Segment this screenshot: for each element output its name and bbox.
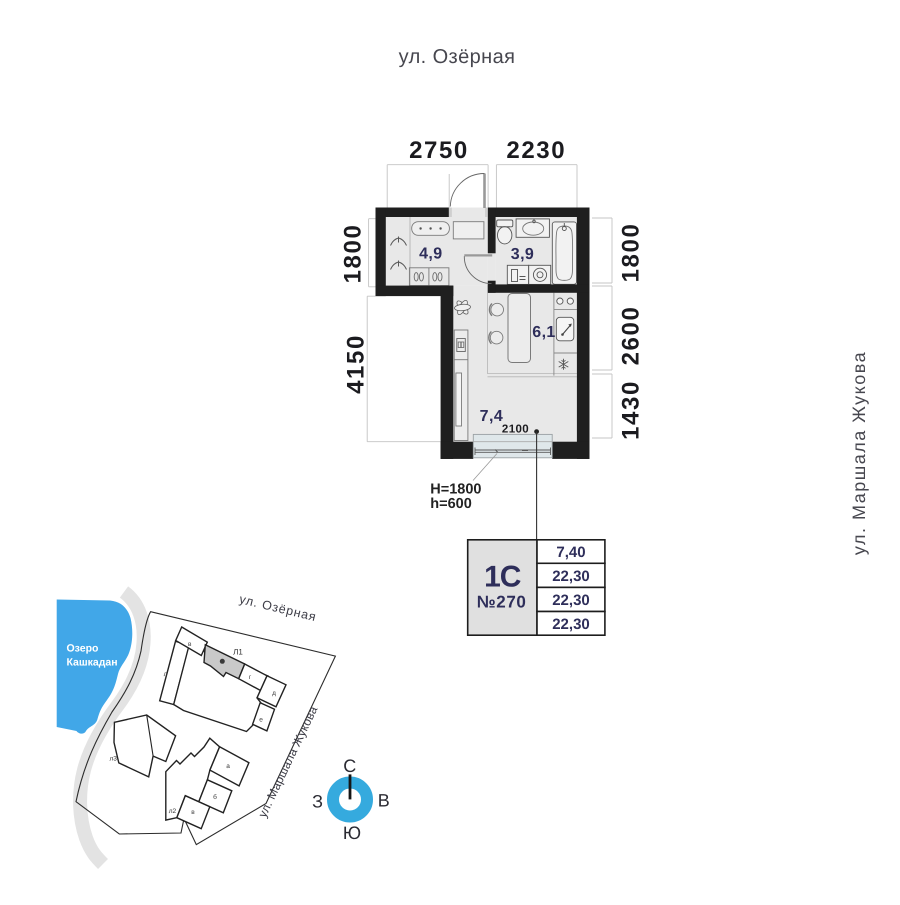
svg-text:е: е [259, 717, 263, 724]
svg-text:а: а [226, 763, 230, 770]
svg-text:2230: 2230 [506, 137, 566, 164]
svg-text:в: в [191, 809, 195, 816]
svg-text:В: В [378, 791, 390, 811]
svg-text:б: б [213, 794, 217, 801]
svg-text:в: в [188, 641, 192, 648]
svg-text:22,30: 22,30 [552, 568, 590, 585]
svg-text:22,30: 22,30 [552, 592, 590, 609]
svg-text:1С: 1С [484, 561, 521, 594]
svg-text:3,9: 3,9 [511, 246, 534, 263]
svg-text:7,4: 7,4 [480, 408, 503, 425]
svg-text:Кашкадан: Кашкадан [67, 657, 118, 669]
svg-text:ул. Озёрная: ул. Озёрная [399, 46, 516, 68]
svg-text:2750: 2750 [409, 137, 469, 164]
svg-text:№270: №270 [477, 593, 527, 612]
svg-text:22,30: 22,30 [552, 616, 590, 633]
svg-text:4150: 4150 [343, 334, 370, 394]
svg-text:ул. Маршала Жукова: ул. Маршала Жукова [849, 351, 869, 555]
svg-text:7,40: 7,40 [556, 544, 585, 561]
svg-text:Озеро: Озеро [67, 643, 99, 655]
svg-text:1800: 1800 [618, 223, 645, 283]
svg-text:л2: л2 [169, 808, 177, 815]
svg-text:л: л [164, 671, 168, 678]
svg-text:Ю: Ю [343, 823, 361, 843]
svg-text:2600: 2600 [618, 306, 645, 366]
svg-text:С: С [343, 756, 356, 776]
svg-text:Л1: Л1 [233, 648, 243, 657]
svg-text:1430: 1430 [618, 380, 645, 440]
svg-text:л3: л3 [109, 756, 117, 763]
svg-text:д: д [272, 690, 276, 697]
svg-text:h=600: h=600 [430, 496, 472, 512]
svg-text:2100: 2100 [502, 423, 529, 435]
svg-text:6,1: 6,1 [532, 324, 555, 341]
svg-text:З: З [312, 792, 323, 812]
svg-text:4,9: 4,9 [419, 246, 442, 263]
svg-text:1800: 1800 [340, 224, 367, 284]
